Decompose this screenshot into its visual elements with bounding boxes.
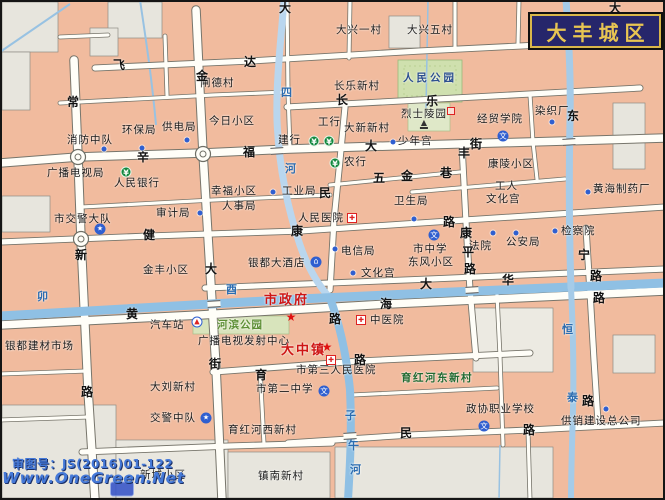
map-label: 少年宫 xyxy=(398,136,433,147)
memorial-box-icon xyxy=(447,107,455,115)
street-name-label: 路 xyxy=(593,292,605,304)
river-name-label: 午 xyxy=(348,440,359,451)
martyrs-monument-icon: ▲ xyxy=(420,119,428,129)
street-name-label: 路 xyxy=(329,313,341,325)
school-icon: 文 xyxy=(319,386,330,397)
street-name-label: 海 xyxy=(380,298,392,310)
map-label: 市中学 xyxy=(413,244,448,255)
street-name-label: 路 xyxy=(81,386,93,398)
hospital-icon: ✚ xyxy=(326,355,336,365)
map-label: 市第二中学 xyxy=(256,384,314,395)
map-label: 消防中队 xyxy=(67,135,113,146)
poi-dot-icon xyxy=(333,247,338,252)
watermark-site: Www.OneGreen.Net xyxy=(2,469,185,487)
street-name-label: 金 xyxy=(196,70,208,82)
poi-dot-icon xyxy=(185,138,190,143)
map-label: 汽车站 xyxy=(150,320,185,331)
river-name-label: 河 xyxy=(350,464,361,475)
map-label: 中医院 xyxy=(370,315,405,326)
police-icon: ★ xyxy=(95,224,106,235)
map-label: 市政府 xyxy=(264,294,309,307)
bank-icon: ¥ xyxy=(121,167,132,178)
school-icon: 文 xyxy=(498,131,509,142)
map-label: 染织厂 xyxy=(535,106,570,117)
hospital-icon: ✚ xyxy=(347,213,357,223)
street-name-label: 达 xyxy=(244,56,256,68)
police-icon: ★ xyxy=(201,413,212,424)
street-name-label: 育 xyxy=(255,369,267,381)
poi-dot-icon xyxy=(514,231,519,236)
street-name-label: 大 xyxy=(205,263,217,275)
map-label: 文化宫 xyxy=(361,268,396,279)
street-name-label: 路 xyxy=(354,354,366,366)
map-label: 电信局 xyxy=(341,246,376,257)
map-label: 人民公园 xyxy=(403,73,457,84)
map-label: 长乐新村 xyxy=(334,81,380,92)
bridge-icon xyxy=(207,300,220,308)
map-label: 供销建设总公司 xyxy=(561,416,642,427)
street-name-label: 民 xyxy=(400,427,412,439)
map-label: 供电局 xyxy=(162,122,197,133)
map-label: 卫生局 xyxy=(394,196,429,207)
map-label: 河滨公园 xyxy=(217,320,263,331)
river-name-label: 恒 xyxy=(562,324,573,335)
map-label: 建行 xyxy=(278,135,301,146)
river-name-label: 酉 xyxy=(226,284,237,295)
map-title: 大丰城区 xyxy=(541,17,651,46)
street-name-label: 常 xyxy=(67,96,79,108)
street-name-label: 大 xyxy=(279,2,291,14)
poi-dot-icon xyxy=(140,146,145,151)
map-label: 工人 xyxy=(495,181,518,192)
street-name-label: 民 xyxy=(319,187,331,199)
street-name-label: 健 xyxy=(143,229,155,241)
poi-dot-icon xyxy=(491,231,496,236)
map-title-box: 大丰城区 xyxy=(528,12,663,50)
government-star-icon: ★ xyxy=(286,311,297,323)
map-label: 环保局 xyxy=(122,125,157,136)
map-label: 交警中队 xyxy=(150,413,196,424)
map-label: 大兴一村 xyxy=(336,25,382,36)
hotel-icon: ⌂ xyxy=(311,257,322,268)
river-name-label: 河 xyxy=(285,163,296,174)
street-name-label: 平 xyxy=(462,246,474,258)
poi-dot-icon xyxy=(198,211,203,216)
map-label: 广播电视发射中心 xyxy=(198,336,290,347)
map-label: 大新新村 xyxy=(344,123,390,134)
hospital-icon: ✚ xyxy=(356,315,366,325)
map-label: 工业局 xyxy=(282,186,317,197)
street-name-label: 福 xyxy=(243,146,255,158)
river-name-label: 四 xyxy=(281,87,292,98)
street-name-label: 路 xyxy=(443,216,455,228)
map-label: 镇南新村 xyxy=(258,471,304,482)
bridge-icon xyxy=(562,138,575,146)
bank-icon: ¥ xyxy=(330,158,341,169)
street-name-label: 巷 xyxy=(440,167,452,179)
map-label: 人事局 xyxy=(222,201,257,212)
bank-icon: ¥ xyxy=(324,136,335,147)
map-label: 文化宫 xyxy=(486,194,521,205)
map-labels-layer: 闸德村大兴一村大兴五村长乐新村大新新村今日小区消防中队环保局供电局广播电视局人民… xyxy=(0,0,665,500)
map-label: 市交警大队 xyxy=(54,214,112,225)
map-label: 银都建材市场 xyxy=(5,341,74,352)
city-map: 闸德村大兴一村大兴五村长乐新村大新新村今日小区消防中队环保局供电局广播电视局人民… xyxy=(0,0,665,500)
street-name-label: 丰 xyxy=(458,147,470,159)
street-name-label: 东 xyxy=(567,110,579,122)
river-name-label: 子 xyxy=(345,410,356,421)
map-label: 大兴五村 xyxy=(407,25,453,36)
map-label: 人民银行 xyxy=(114,178,160,189)
map-label: 金丰小区 xyxy=(143,265,189,276)
map-label: 幸福小区 xyxy=(211,186,257,197)
street-name-label: 康 xyxy=(291,225,303,237)
map-label: 公安局 xyxy=(506,237,541,248)
poi-dot-icon xyxy=(412,217,417,222)
river-name-label: 卯 xyxy=(37,291,48,302)
map-label: 东风小区 xyxy=(408,257,454,268)
map-label: 康陵小区 xyxy=(488,159,534,170)
map-label: 检察院 xyxy=(561,226,596,237)
poi-dot-icon xyxy=(586,190,591,195)
street-name-label: 大 xyxy=(420,278,432,290)
street-name-label: 乐 xyxy=(426,95,438,107)
street-name-label: 宁 xyxy=(578,249,590,261)
street-name-label: 黄 xyxy=(126,308,138,320)
poi-dot-icon xyxy=(391,140,396,145)
street-name-label: 路 xyxy=(582,395,594,407)
river-name-label: 泰 xyxy=(567,392,578,403)
school-icon: 文 xyxy=(479,421,490,432)
street-name-label: 街 xyxy=(209,358,221,370)
bank-icon: ¥ xyxy=(309,136,320,147)
street-name-label: 路 xyxy=(590,270,602,282)
map-label: 广播电视局 xyxy=(47,168,105,179)
street-name-label: 辛 xyxy=(137,151,149,163)
government-star-icon: ★ xyxy=(322,341,333,353)
map-label: 经贸学院 xyxy=(477,114,523,125)
map-label: 人民医院 xyxy=(298,213,344,224)
street-name-label: 街 xyxy=(470,138,482,150)
street-name-label: 路 xyxy=(523,424,535,436)
map-label: 农行 xyxy=(344,157,367,168)
poi-dot-icon xyxy=(102,147,107,152)
map-label: 政协职业学校 xyxy=(466,404,535,415)
street-name-label: 新 xyxy=(75,249,87,261)
street-name-label: 金 xyxy=(401,170,413,182)
bus-station-icon: ▲ xyxy=(192,317,203,328)
bridge-icon xyxy=(270,147,283,155)
map-label: 工行 xyxy=(318,117,341,128)
street-name-label: 路 xyxy=(464,263,476,275)
map-label: 审计局 xyxy=(156,208,191,219)
street-name-label: 大 xyxy=(365,140,377,152)
poi-dot-icon xyxy=(604,407,609,412)
map-label: 育红河西新村 xyxy=(228,425,297,436)
map-label: 黄海制药厂 xyxy=(593,184,651,195)
street-name-label: 华 xyxy=(502,274,514,286)
poi-dot-icon xyxy=(550,120,555,125)
map-label: 大刘新村 xyxy=(150,382,196,393)
poi-dot-icon xyxy=(553,229,558,234)
street-name-label: 飞 xyxy=(113,59,125,71)
street-name-label: 康 xyxy=(460,227,472,239)
street-name-label: 五 xyxy=(373,172,385,184)
bridge-icon xyxy=(343,432,356,440)
poi-dot-icon xyxy=(351,271,356,276)
map-label: 今日小区 xyxy=(209,116,255,127)
street-name-label: 长 xyxy=(336,94,348,106)
bridge-icon xyxy=(465,286,478,294)
poi-dot-icon xyxy=(271,190,276,195)
map-label: 育红河东新村 xyxy=(401,373,473,384)
map-label: 银都大酒店 xyxy=(248,258,306,269)
school-icon: 文 xyxy=(429,230,440,241)
